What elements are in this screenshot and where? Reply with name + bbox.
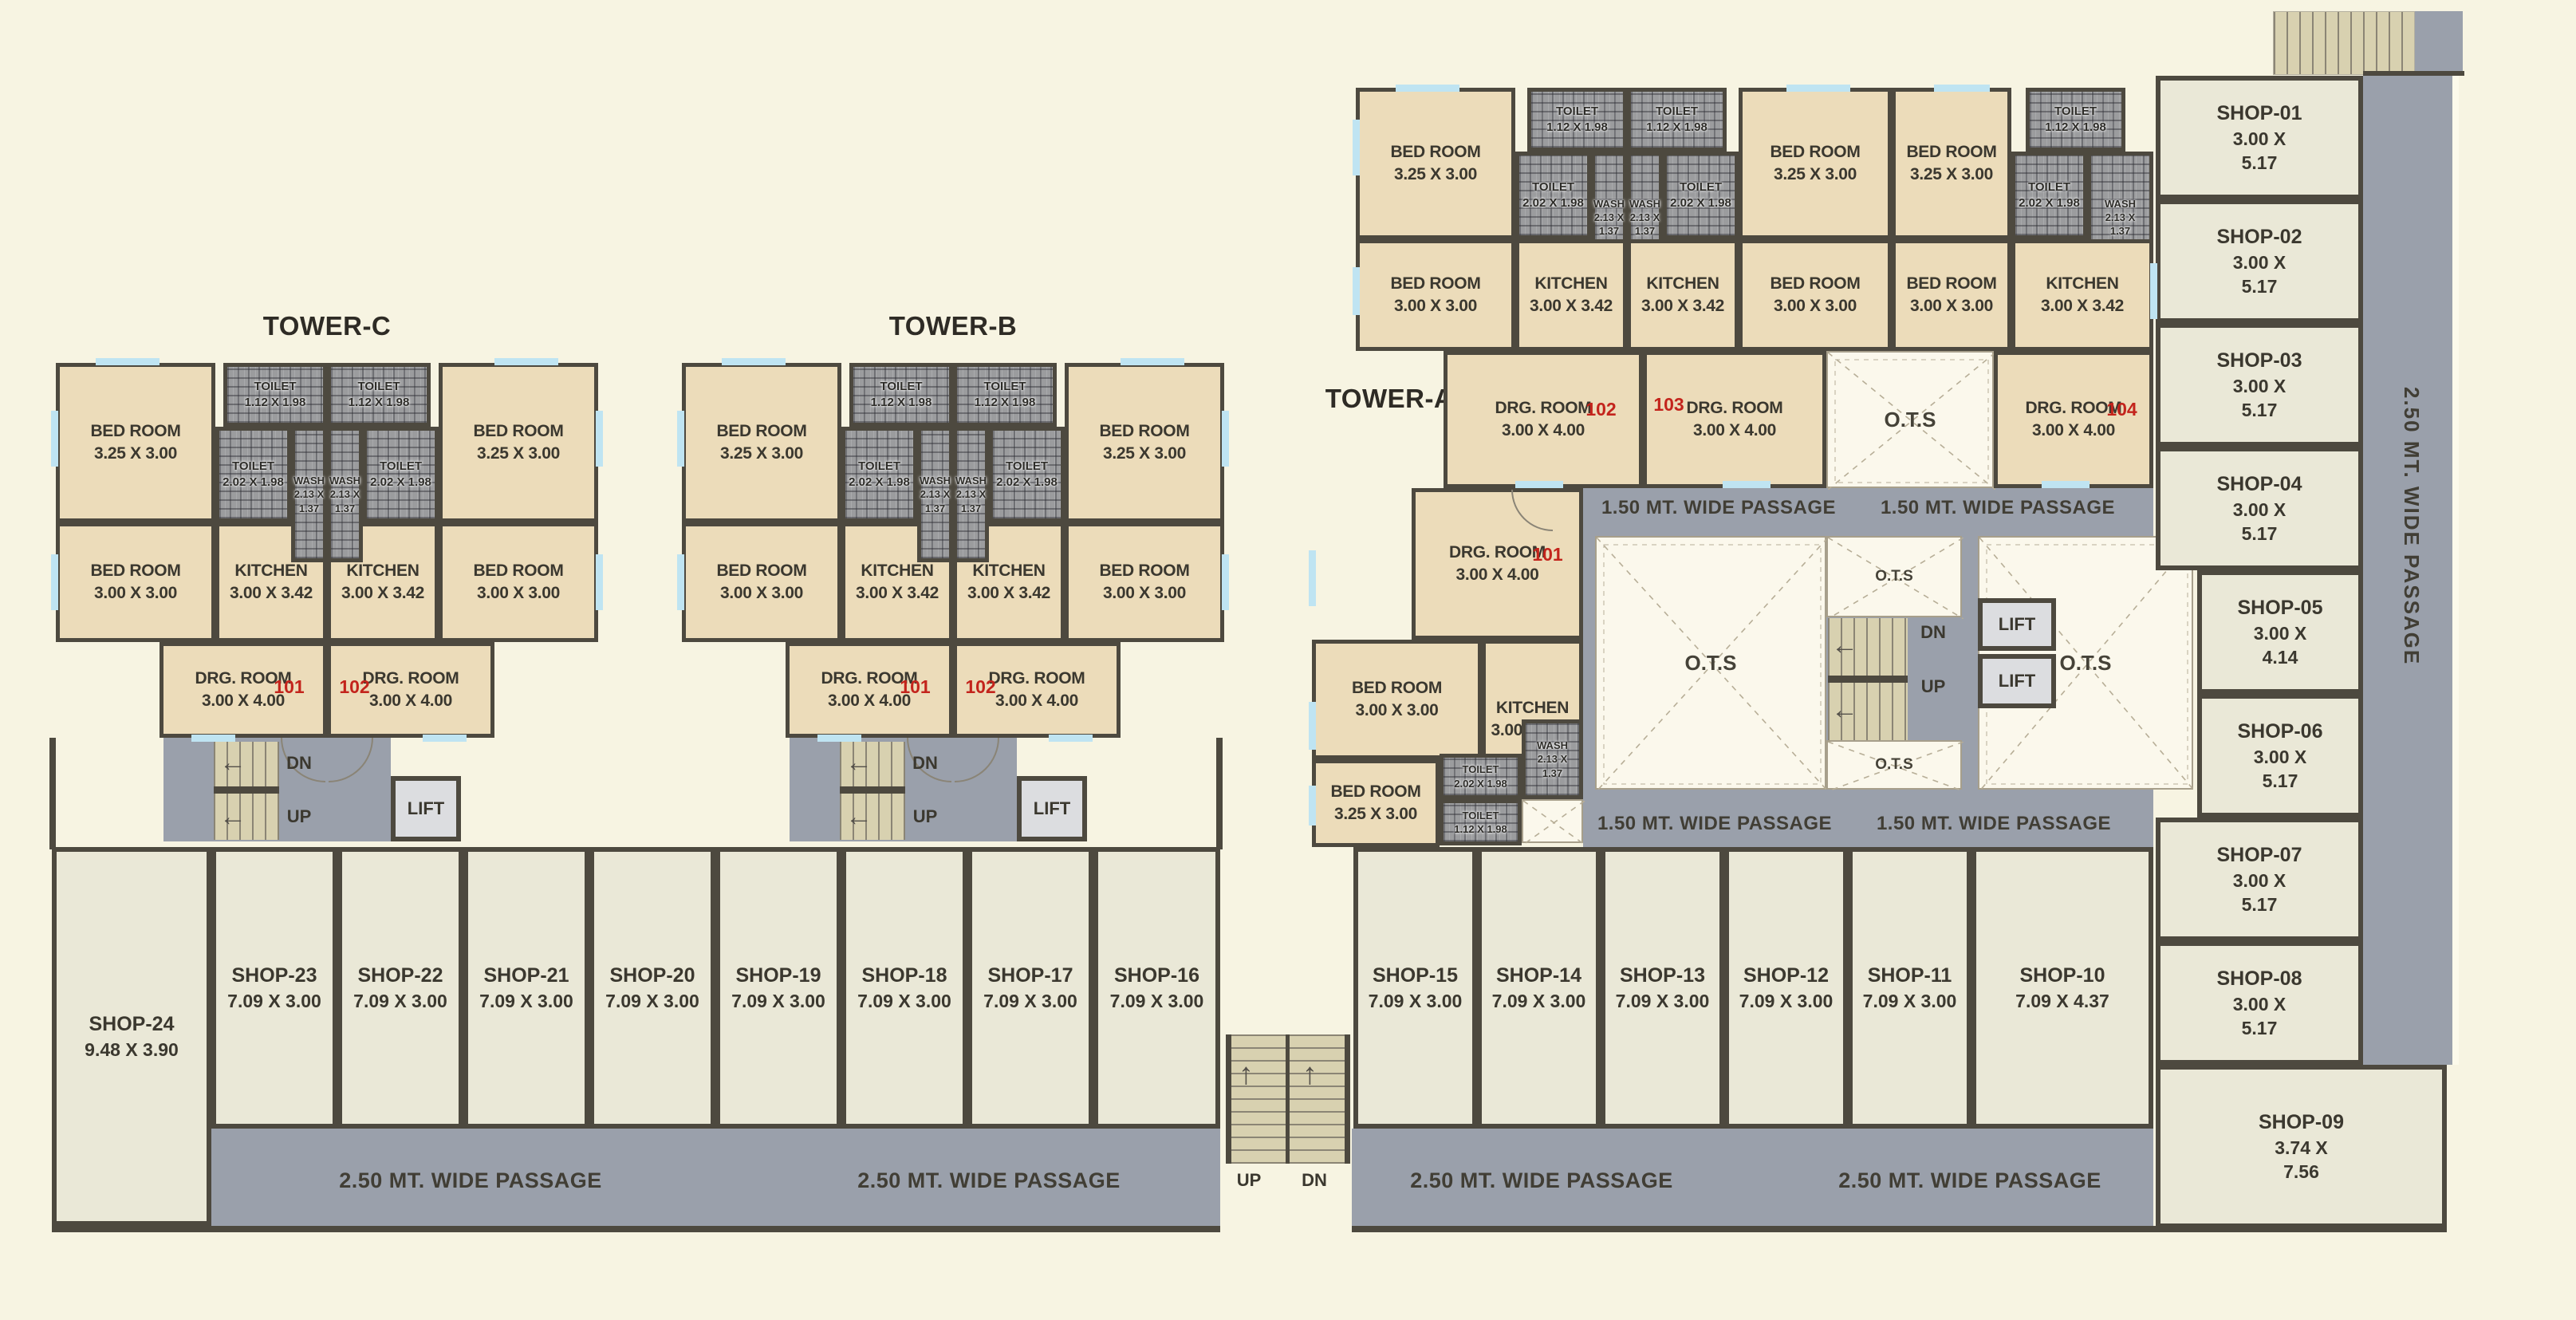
towerc-unit-102-label: 102: [337, 676, 372, 697]
left-boundary-bottom-wall: [52, 1226, 1220, 1232]
towerb-stair-arrow-dn: ←: [845, 750, 895, 775]
towera-core-up-label-label: UP: [1912, 676, 1954, 697]
left-passage-label-2: 2.50 MT. WIDE PASSAGE: [869, 1169, 1109, 1193]
towera-top-small-ots: O.T.S: [1826, 536, 1962, 617]
towera-wing-toilet-2-label: TOILET2.02 X 1.98: [1444, 758, 1518, 795]
mid-dn-label: DN: [1294, 1170, 1335, 1191]
towera-kitchen-3: KITCHEN3.00 X 3.42: [2011, 239, 2153, 351]
towerb-dn-label-label: DN: [905, 753, 945, 774]
towera-bed-5-label: BED ROOM3.00 X 3.00: [1743, 243, 1888, 347]
towerc-toilet-3: TOILET2.02 X 1.98: [363, 427, 439, 522]
towerb-up-label: UP: [905, 806, 945, 827]
towera-unit-101: 101: [1530, 544, 1566, 565]
core-passage-top-label-1: 1.50 MT. WIDE PASSAGE: [1599, 497, 1838, 519]
towerb-bed-3-label: BED ROOM3.00 X 3.00: [1069, 526, 1220, 638]
towerc-bed-1: BED ROOM3.25 X 3.00: [56, 363, 215, 522]
shop-17-label: SHOP-177.09 X 3.00: [972, 852, 1089, 1124]
towera-unit-104-label: 104: [2104, 399, 2140, 420]
towera-toilet-3a: TOILET1.12 X 1.98: [2026, 88, 2125, 152]
core-passage-bottom-label-1: 1.50 MT. WIDE PASSAGE: [1595, 813, 1834, 835]
shop-19: SHOP-197.09 X 3.00: [715, 847, 841, 1129]
towera-toilet-2a-label: TOILET1.12 X 1.98: [1631, 92, 1723, 148]
towerc-lift: LIFT: [391, 776, 461, 841]
towerc-window-8: [423, 735, 467, 742]
towerc-toilet-3-label: TOILET2.02 X 1.98: [367, 431, 435, 518]
towera-bed-3-label: BED ROOM3.25 X 3.00: [1896, 92, 2007, 235]
towerb-stair-arrow-up: ←: [845, 804, 895, 829]
towerc-stair-arrow-up: ←: [219, 804, 269, 829]
towerb-bed-2: BED ROOM3.00 X 3.00: [682, 522, 841, 642]
towera-core-dn-label: DN: [1912, 622, 1954, 643]
towera-lift-2-label: LIFT: [1983, 659, 2051, 703]
towerc-window-2: [494, 358, 558, 365]
towera-toilet-1b: TOILET2.02 X 1.98: [1515, 152, 1591, 239]
towera-wing-toilet-1: TOILET1.12 X 1.98: [1440, 799, 1522, 845]
towera-kitchen-1: KITCHEN3.00 X 3.42: [1515, 239, 1627, 351]
towera-window-9: [2042, 481, 2090, 488]
shop-11: SHOP-117.09 X 3.00: [1848, 847, 1971, 1129]
towerc-dn-label-label: DN: [279, 753, 319, 774]
towerc-wash-2: WASH2.13 X1.37: [327, 427, 363, 562]
floor-plan-canvas: TOWER-C TOWER-B TOWER-A ←←←←↑↑O.T.SO.T.S…: [0, 0, 2576, 1320]
towerb-unit-101-label: 101: [897, 676, 933, 697]
towerc-bed-4-label: BED ROOM3.25 X 3.00: [443, 367, 594, 518]
shop-11-label: SHOP-117.09 X 3.00: [1853, 852, 1967, 1124]
towerc-window-4: [596, 411, 603, 467]
towera-toilet-2a: TOILET1.12 X 1.98: [1627, 88, 1727, 152]
towera-toilet-1a-label: TOILET1.12 X 1.98: [1531, 92, 1623, 148]
towera-bed-2: BED ROOM3.25 X 3.00: [1739, 88, 1892, 239]
towera-wing-bed-1: BED ROOM3.00 X 3.00: [1312, 640, 1482, 759]
towerb-window-6: [1222, 554, 1229, 610]
mid-dn-label-label: DN: [1294, 1170, 1335, 1191]
vertical-passage-label-label: 2.50 MT. WIDE PASSAGE: [2387, 303, 2436, 750]
left-passage-label-1: 2.50 MT. WIDE PASSAGE: [351, 1169, 590, 1193]
towera-window-7: [1515, 481, 1563, 488]
towera-core-dn-label-label: DN: [1912, 622, 1954, 643]
towerc-wash-2-label: WASH2.13 X1.37: [331, 431, 359, 558]
towerb-toilet-3: TOILET2.02 X 1.98: [989, 427, 1065, 522]
towerb-bed-2-label: BED ROOM3.00 X 3.00: [686, 526, 837, 638]
tower-b-title: TOWER-B: [865, 311, 1041, 341]
towera-bed-6: BED ROOM3.00 X 3.00: [1892, 239, 2011, 351]
towera-window-4: [1353, 120, 1360, 175]
towera-bed-4: BED ROOM3.00 X 3.00: [1356, 239, 1515, 351]
towera-wing-ots: [1522, 799, 1583, 843]
towera-core-arrow-dn: ←: [1831, 632, 1881, 658]
right-passage-label-1-label: 2.50 MT. WIDE PASSAGE: [1422, 1169, 1661, 1193]
towera-toilet-1b-label: TOILET2.02 X 1.98: [1519, 156, 1587, 235]
towera-wing-bed-2: BED ROOM3.25 X 3.00: [1312, 759, 1440, 847]
towera-unit-103: 103: [1651, 394, 1687, 415]
towerc-wash-1-label: WASH2.13 X1.37: [295, 431, 323, 558]
towerc-up-label: UP: [279, 806, 319, 827]
towerb-stairs-landing: [840, 786, 905, 794]
towerb-toilet-2: TOILET2.02 X 1.98: [841, 427, 917, 522]
shop-09-label: SHOP-093.74 X7.56: [2160, 1070, 2442, 1223]
right-passage-label-2-label: 2.50 MT. WIDE PASSAGE: [1850, 1169, 2090, 1193]
towera-wing-toilet-1-label: TOILET1.12 X 1.98: [1444, 803, 1518, 841]
towerb-window-8: [1049, 735, 1093, 742]
towerb-bed-1-label: BED ROOM3.25 X 3.00: [686, 367, 837, 518]
shop-15: SHOP-157.09 X 3.00: [1353, 847, 1477, 1129]
towera-core-up-label: UP: [1912, 676, 1954, 697]
towera-top-small-ots-label: O.T.S: [1828, 538, 1960, 616]
towera-drg-room-103: DRG. ROOM3.00 X 4.00: [1643, 351, 1826, 488]
towerc-toilet-4-label: TOILET1.12 X 1.98: [331, 367, 427, 423]
shop-16: SHOP-167.09 X 3.00: [1093, 847, 1220, 1129]
towera-wing-toilet-2: TOILET2.02 X 1.98: [1440, 754, 1522, 799]
shop-10-label: SHOP-107.09 X 4.37: [1976, 852, 2149, 1124]
shop-13: SHOP-137.09 X 3.00: [1601, 847, 1724, 1129]
towerc-window-7: [191, 735, 235, 742]
towerb-window-5: [677, 554, 684, 610]
mid-stairs-divider: [1286, 1034, 1290, 1164]
shop-20-label: SHOP-207.09 X 3.00: [594, 852, 711, 1124]
shop-04-label: SHOP-043.00 X5.17: [2160, 451, 2358, 565]
towera-window-8: [1723, 481, 1771, 488]
shop-09: SHOP-093.74 X7.56: [2156, 1065, 2447, 1228]
towerc-up-label-label: UP: [279, 806, 319, 827]
towerb-window-7: [817, 735, 861, 742]
towerb-connector-wall: [1216, 738, 1223, 849]
shop-13-label: SHOP-137.09 X 3.00: [1605, 852, 1719, 1124]
towerb-bed-1: BED ROOM3.25 X 3.00: [682, 363, 841, 522]
towerc-connector-wall: [49, 738, 56, 849]
towera-big-ots-label: O.T.S: [1597, 538, 1825, 788]
towerb-window-2: [1121, 358, 1184, 365]
towera-wing-bed-2-label: BED ROOM3.25 X 3.00: [1316, 763, 1436, 843]
towerb-wash-1-label: WASH2.13 X1.37: [921, 431, 949, 558]
towera-window-10: [1309, 550, 1316, 606]
shop-08: SHOP-083.00 X5.17: [2156, 941, 2363, 1065]
towera-bed-4-label: BED ROOM3.00 X 3.00: [1360, 243, 1511, 347]
towerb-toilet-1: TOILET1.12 X 1.98: [849, 363, 953, 427]
towerb-toilet-1-label: TOILET1.12 X 1.98: [853, 367, 949, 423]
towerc-bed-3-label: BED ROOM3.00 X 3.00: [443, 526, 594, 638]
shop-03-label: SHOP-033.00 X5.17: [2160, 328, 2358, 442]
towera-bed-1-label: BED ROOM3.25 X 3.00: [1360, 92, 1511, 235]
shop-01-label: SHOP-013.00 X5.17: [2160, 81, 2358, 195]
towerc-toilet-1: TOILET1.12 X 1.98: [223, 363, 327, 427]
towerb-wash-2: WASH2.13 X1.37: [953, 427, 989, 562]
mid-up-label: UP: [1228, 1170, 1270, 1191]
right-boundary-bottom-wall: [1352, 1226, 2447, 1232]
towerb-bed-4-label: BED ROOM3.25 X 3.00: [1069, 367, 1220, 518]
towera-bed-6-label: BED ROOM3.00 X 3.00: [1896, 243, 2007, 347]
towera-window-2: [1786, 85, 1850, 92]
shop-15-label: SHOP-157.09 X 3.00: [1358, 852, 1472, 1124]
shop-05-label: SHOP-053.00 X4.14: [2202, 575, 2358, 689]
shop-06: SHOP-063.00 X5.17: [2197, 694, 2363, 818]
towera-lift-1: LIFT: [1978, 598, 2056, 651]
towera-big-ots: O.T.S: [1595, 536, 1826, 790]
towera-bed-1: BED ROOM3.25 X 3.00: [1356, 88, 1515, 239]
towera-window-3: [1934, 85, 1990, 92]
towera-unit-104: 104: [2104, 399, 2140, 420]
towera-lift-1-label: LIFT: [1983, 603, 2051, 646]
towera-drg-ots: O.T.S: [1826, 351, 1994, 488]
towerc-toilet-1-label: TOILET1.12 X 1.98: [227, 367, 323, 423]
shop-24: SHOP-249.48 X 3.90: [52, 847, 211, 1226]
right-passage-label-1: 2.50 MT. WIDE PASSAGE: [1422, 1169, 1661, 1193]
shop-03: SHOP-033.00 X5.17: [2156, 323, 2363, 447]
towera-lift-2: LIFT: [1978, 654, 2056, 708]
towera-window-6: [2150, 263, 2157, 319]
towera-wing-wash-label: WASH2.13 X1.37: [1526, 723, 1579, 795]
core-passage-bottom-label-1-label: 1.50 MT. WIDE PASSAGE: [1595, 813, 1834, 835]
shop-21-label: SHOP-217.09 X 3.00: [468, 852, 585, 1124]
towera-unit-102-label: 102: [1583, 399, 1619, 420]
core-passage-bottom-label-2: 1.50 MT. WIDE PASSAGE: [1874, 813, 2113, 835]
shop-21: SHOP-217.09 X 3.00: [463, 847, 589, 1129]
towerb-toilet-2-label: TOILET2.02 X 1.98: [845, 431, 913, 518]
towerc-window-5: [51, 554, 58, 610]
towera-unit-102: 102: [1583, 399, 1619, 420]
shop-01: SHOP-013.00 X5.17: [2156, 76, 2363, 199]
towera-toilet-1a: TOILET1.12 X 1.98: [1527, 88, 1627, 152]
towerc-toilet-4: TOILET1.12 X 1.98: [327, 363, 431, 427]
ramp-stairs: [2273, 11, 2415, 75]
towera-bed-3: BED ROOM3.25 X 3.00: [1892, 88, 2011, 239]
towera-core-arrow-up: ←: [1831, 697, 1881, 723]
towerc-bed-1-label: BED ROOM3.25 X 3.00: [60, 367, 211, 518]
towera-bed-2-label: BED ROOM3.25 X 3.00: [1743, 92, 1888, 235]
shop-20: SHOP-207.09 X 3.00: [589, 847, 715, 1129]
towerc-bed-4: BED ROOM3.25 X 3.00: [439, 363, 598, 522]
towera-unit-101-label: 101: [1530, 544, 1566, 565]
towerc-lift-label: LIFT: [396, 781, 456, 837]
towerc-stairs-landing: [214, 786, 279, 794]
towera-window-1: [1396, 85, 1459, 92]
towerb-window-3: [677, 411, 684, 467]
left-passage-label-1-label: 2.50 MT. WIDE PASSAGE: [351, 1169, 590, 1193]
towera-drg-room-103-label: DRG. ROOM3.00 X 4.00: [1647, 355, 1822, 484]
mid-stair-arrow-2: ↑: [1302, 1057, 1334, 1092]
towerb-wash-1: WASH2.13 X1.37: [917, 427, 953, 562]
towerc-unit-101: 101: [271, 676, 307, 697]
towera-toilet-3a-label: TOILET1.12 X 1.98: [2030, 92, 2121, 148]
shop-07: SHOP-073.00 X5.17: [2156, 818, 2363, 941]
towerc-unit-102: 102: [337, 676, 372, 697]
towera-kitchen-1-label: KITCHEN3.00 X 3.42: [1519, 243, 1623, 347]
towera-toilet-3b-label: TOILET2.02 X 1.98: [2015, 156, 2083, 235]
ramp-gray: [2415, 11, 2463, 75]
towerb-unit-102: 102: [963, 676, 998, 697]
shop-08-label: SHOP-083.00 X5.17: [2160, 946, 2358, 1060]
towerb-bed-3: BED ROOM3.00 X 3.00: [1065, 522, 1224, 642]
towerc-unit-101-label: 101: [271, 676, 307, 697]
towera-toilet-2b: TOILET2.02 X 1.98: [1663, 152, 1739, 239]
shop-24-label: SHOP-249.48 X 3.90: [57, 852, 207, 1221]
towerb-window-4: [1222, 411, 1229, 467]
towerc-bed-3: BED ROOM3.00 X 3.00: [439, 522, 598, 642]
vertical-passage-label: 2.50 MT. WIDE PASSAGE: [2387, 303, 2436, 750]
towera-wing-wash: WASH2.13 X1.37: [1522, 719, 1583, 799]
shop-17: SHOP-177.09 X 3.00: [967, 847, 1093, 1129]
towerb-unit-101: 101: [897, 676, 933, 697]
towera-unit-103-label: 103: [1651, 394, 1687, 415]
towerc-dn-label: DN: [279, 753, 319, 774]
towerc-window-6: [596, 554, 603, 610]
shop-23-label: SHOP-237.09 X 3.00: [216, 852, 333, 1124]
shop-07-label: SHOP-073.00 X5.17: [2160, 822, 2358, 936]
towerc-bed-2-label: BED ROOM3.00 X 3.00: [60, 526, 211, 638]
shop-10: SHOP-107.09 X 4.37: [1971, 847, 2153, 1129]
towera-window-11: [1309, 702, 1316, 750]
towera-bed-5: BED ROOM3.00 X 3.00: [1739, 239, 1892, 351]
towerc-stair-arrow-dn: ←: [219, 750, 269, 775]
towera-kitchen-2-label: KITCHEN3.00 X 3.42: [1631, 243, 1735, 347]
towerb-window-1: [722, 358, 786, 365]
core-passage-bottom-label-2-label: 1.50 MT. WIDE PASSAGE: [1874, 813, 2113, 835]
shop-12-label: SHOP-127.09 X 3.00: [1729, 852, 1843, 1124]
towerb-unit-102-label: 102: [963, 676, 998, 697]
towera-kitchen-2: KITCHEN3.00 X 3.42: [1627, 239, 1739, 351]
towerb-lift: LIFT: [1017, 776, 1087, 841]
towera-bottom-small-ots: O.T.S: [1826, 740, 1962, 790]
shop-02: SHOP-023.00 X5.17: [2156, 199, 2363, 323]
mid-up-label-label: UP: [1228, 1170, 1270, 1191]
shop-22-label: SHOP-227.09 X 3.00: [342, 852, 459, 1124]
towerb-toilet-3-label: TOILET2.02 X 1.98: [993, 431, 1061, 518]
towerc-window-1: [96, 358, 160, 365]
towerb-up-label-label: UP: [905, 806, 945, 827]
mid-stair-arrow-1: ↑: [1239, 1057, 1270, 1092]
towerb-toilet-4: TOILET1.12 X 1.98: [953, 363, 1057, 427]
right-passage-top-wall: [2363, 71, 2464, 76]
towerc-bed-2: BED ROOM3.00 X 3.00: [56, 522, 215, 642]
towerb-wash-2-label: WASH2.13 X1.37: [957, 431, 985, 558]
core-passage-top-label-1-label: 1.50 MT. WIDE PASSAGE: [1599, 497, 1838, 519]
towera-kitchen-3-label: KITCHEN3.00 X 3.42: [2015, 243, 2149, 347]
towera-wing-bed-1-label: BED ROOM3.00 X 3.00: [1316, 644, 1478, 755]
towera-toilet-2b-label: TOILET2.02 X 1.98: [1667, 156, 1735, 235]
shop-12: SHOP-127.09 X 3.00: [1724, 847, 1848, 1129]
towerc-window-3: [51, 411, 58, 467]
shop-22: SHOP-227.09 X 3.00: [337, 847, 463, 1129]
towerb-bed-4: BED ROOM3.25 X 3.00: [1065, 363, 1224, 522]
shop-04: SHOP-043.00 X5.17: [2156, 447, 2363, 570]
shop-14-label: SHOP-147.09 X 3.00: [1482, 852, 1596, 1124]
towerc-toilet-2: TOILET2.02 X 1.98: [215, 427, 291, 522]
shop-14: SHOP-147.09 X 3.00: [1477, 847, 1601, 1129]
core-passage-top-label-2: 1.50 MT. WIDE PASSAGE: [1878, 497, 2117, 519]
core-passage-top-label-2-label: 1.50 MT. WIDE PASSAGE: [1878, 497, 2117, 519]
towerc-toilet-2-label: TOILET2.02 X 1.98: [219, 431, 287, 518]
towerb-lift-label: LIFT: [1022, 781, 1082, 837]
towera-window-5: [1353, 267, 1360, 315]
towerb-toilet-4-label: TOILET1.12 X 1.98: [957, 367, 1053, 423]
towera-drg-ots-label: O.T.S: [1828, 353, 1992, 487]
shop-23: SHOP-237.09 X 3.00: [211, 847, 337, 1129]
towerb-dn-label: DN: [905, 753, 945, 774]
shop-02-label: SHOP-023.00 X5.17: [2160, 204, 2358, 318]
towera-core-stairs-landing: [1828, 676, 1908, 683]
shop-18-label: SHOP-187.09 X 3.00: [846, 852, 963, 1124]
towera-bottom-small-ots-label: O.T.S: [1828, 742, 1960, 788]
left-passage-label-2-label: 2.50 MT. WIDE PASSAGE: [869, 1169, 1109, 1193]
shop-16-label: SHOP-167.09 X 3.00: [1098, 852, 1215, 1124]
towerc-wash-1: WASH2.13 X1.37: [291, 427, 327, 562]
shop-06-label: SHOP-063.00 X5.17: [2202, 699, 2358, 813]
shop-05: SHOP-053.00 X4.14: [2197, 570, 2363, 694]
right-passage-label-2: 2.50 MT. WIDE PASSAGE: [1850, 1169, 2090, 1193]
towera-toilet-3b: TOILET2.02 X 1.98: [2011, 152, 2087, 239]
shop-19-label: SHOP-197.09 X 3.00: [720, 852, 837, 1124]
towera-window-12: [1309, 786, 1316, 825]
shop-18: SHOP-187.09 X 3.00: [841, 847, 967, 1129]
tower-c-title: TOWER-C: [239, 311, 415, 341]
